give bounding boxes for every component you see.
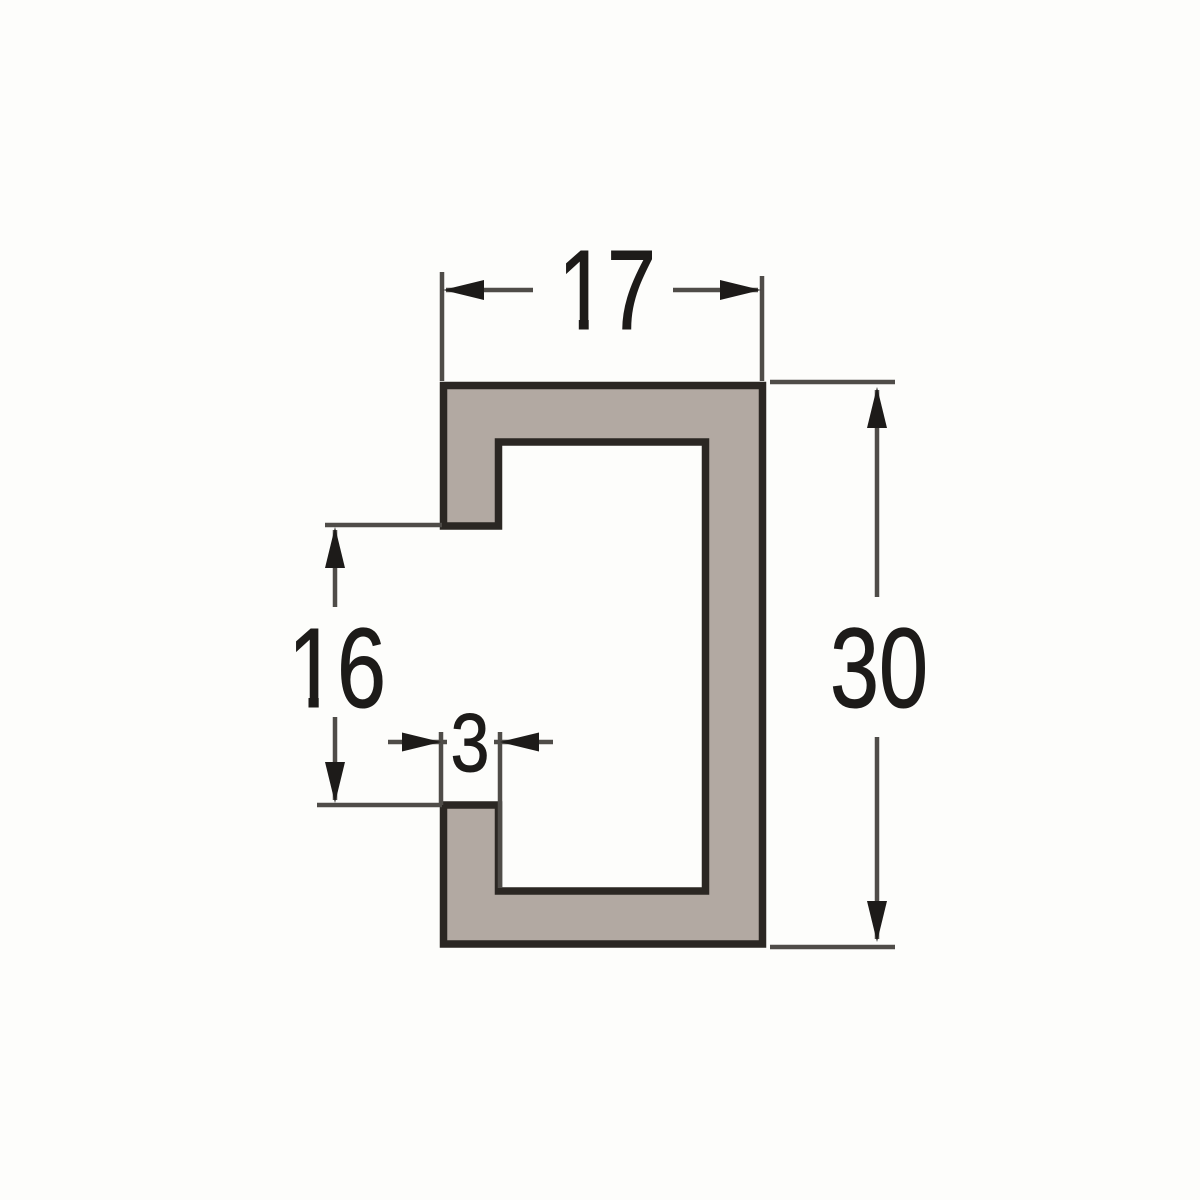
svg-text:30: 30 (830, 606, 928, 732)
svg-text:17: 17 (558, 228, 656, 354)
svg-text:3: 3 (451, 697, 490, 789)
svg-text:16: 16 (288, 606, 386, 732)
